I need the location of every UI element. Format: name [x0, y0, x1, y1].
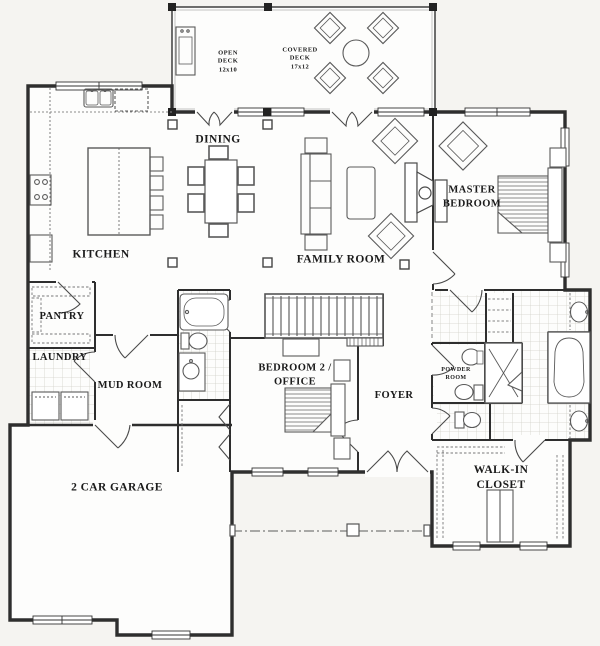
bathroom-sink-icon	[179, 353, 205, 391]
dining-chair-icon	[188, 194, 204, 212]
dining-chair-icon	[238, 167, 254, 185]
porch-post	[424, 525, 430, 536]
front-window	[308, 468, 338, 476]
dresser-icon	[283, 339, 319, 356]
column	[263, 120, 272, 129]
master-window-top	[465, 108, 530, 116]
column	[168, 120, 177, 129]
headboard	[331, 384, 345, 436]
garage-window	[152, 631, 190, 639]
deck-post	[168, 3, 176, 11]
nightstand-icon	[550, 243, 566, 262]
toilet-icon	[181, 333, 207, 349]
deck-floor	[172, 7, 435, 112]
dining-chair-icon	[238, 194, 254, 212]
porch-post	[230, 525, 235, 536]
closet-window	[520, 542, 547, 550]
bathtub-icon	[180, 294, 228, 330]
wall-post	[263, 108, 271, 116]
front-window	[252, 468, 283, 476]
floor-plan-drawing	[0, 0, 600, 646]
floor-plan: OPEN DECK 12x10 COVERED DECK 17x12 DININ…	[0, 0, 600, 646]
dryer-icon	[61, 392, 88, 420]
closet-window	[453, 542, 480, 550]
nightstand-icon	[550, 148, 566, 167]
family-window	[378, 108, 424, 116]
master-tub-icon	[548, 332, 590, 403]
headboard	[548, 168, 562, 242]
pedestal-sink-icon	[462, 349, 483, 365]
column	[168, 258, 177, 267]
washer-icon	[32, 392, 59, 420]
dining-chair-icon	[188, 167, 204, 185]
wall-post	[429, 108, 437, 116]
nightstand-icon	[334, 438, 350, 459]
deck-post	[264, 3, 272, 11]
stair-landing	[347, 338, 383, 346]
dining-chair-icon	[209, 224, 228, 237]
toilet-icon	[455, 385, 483, 401]
stairs	[265, 294, 383, 346]
wc-toilet-icon	[455, 412, 481, 428]
column	[263, 258, 272, 267]
porch-post	[347, 524, 359, 536]
closet-island-icon	[487, 490, 513, 542]
garage-window	[33, 616, 92, 624]
porch-roofline	[230, 524, 430, 536]
deck-post	[429, 3, 437, 11]
dining-chair-icon	[209, 146, 228, 159]
column	[400, 260, 409, 269]
nightstand-icon	[334, 360, 350, 381]
shower-icon	[485, 343, 522, 403]
linen-floor	[486, 293, 513, 343]
dining-table-icon	[205, 160, 237, 223]
